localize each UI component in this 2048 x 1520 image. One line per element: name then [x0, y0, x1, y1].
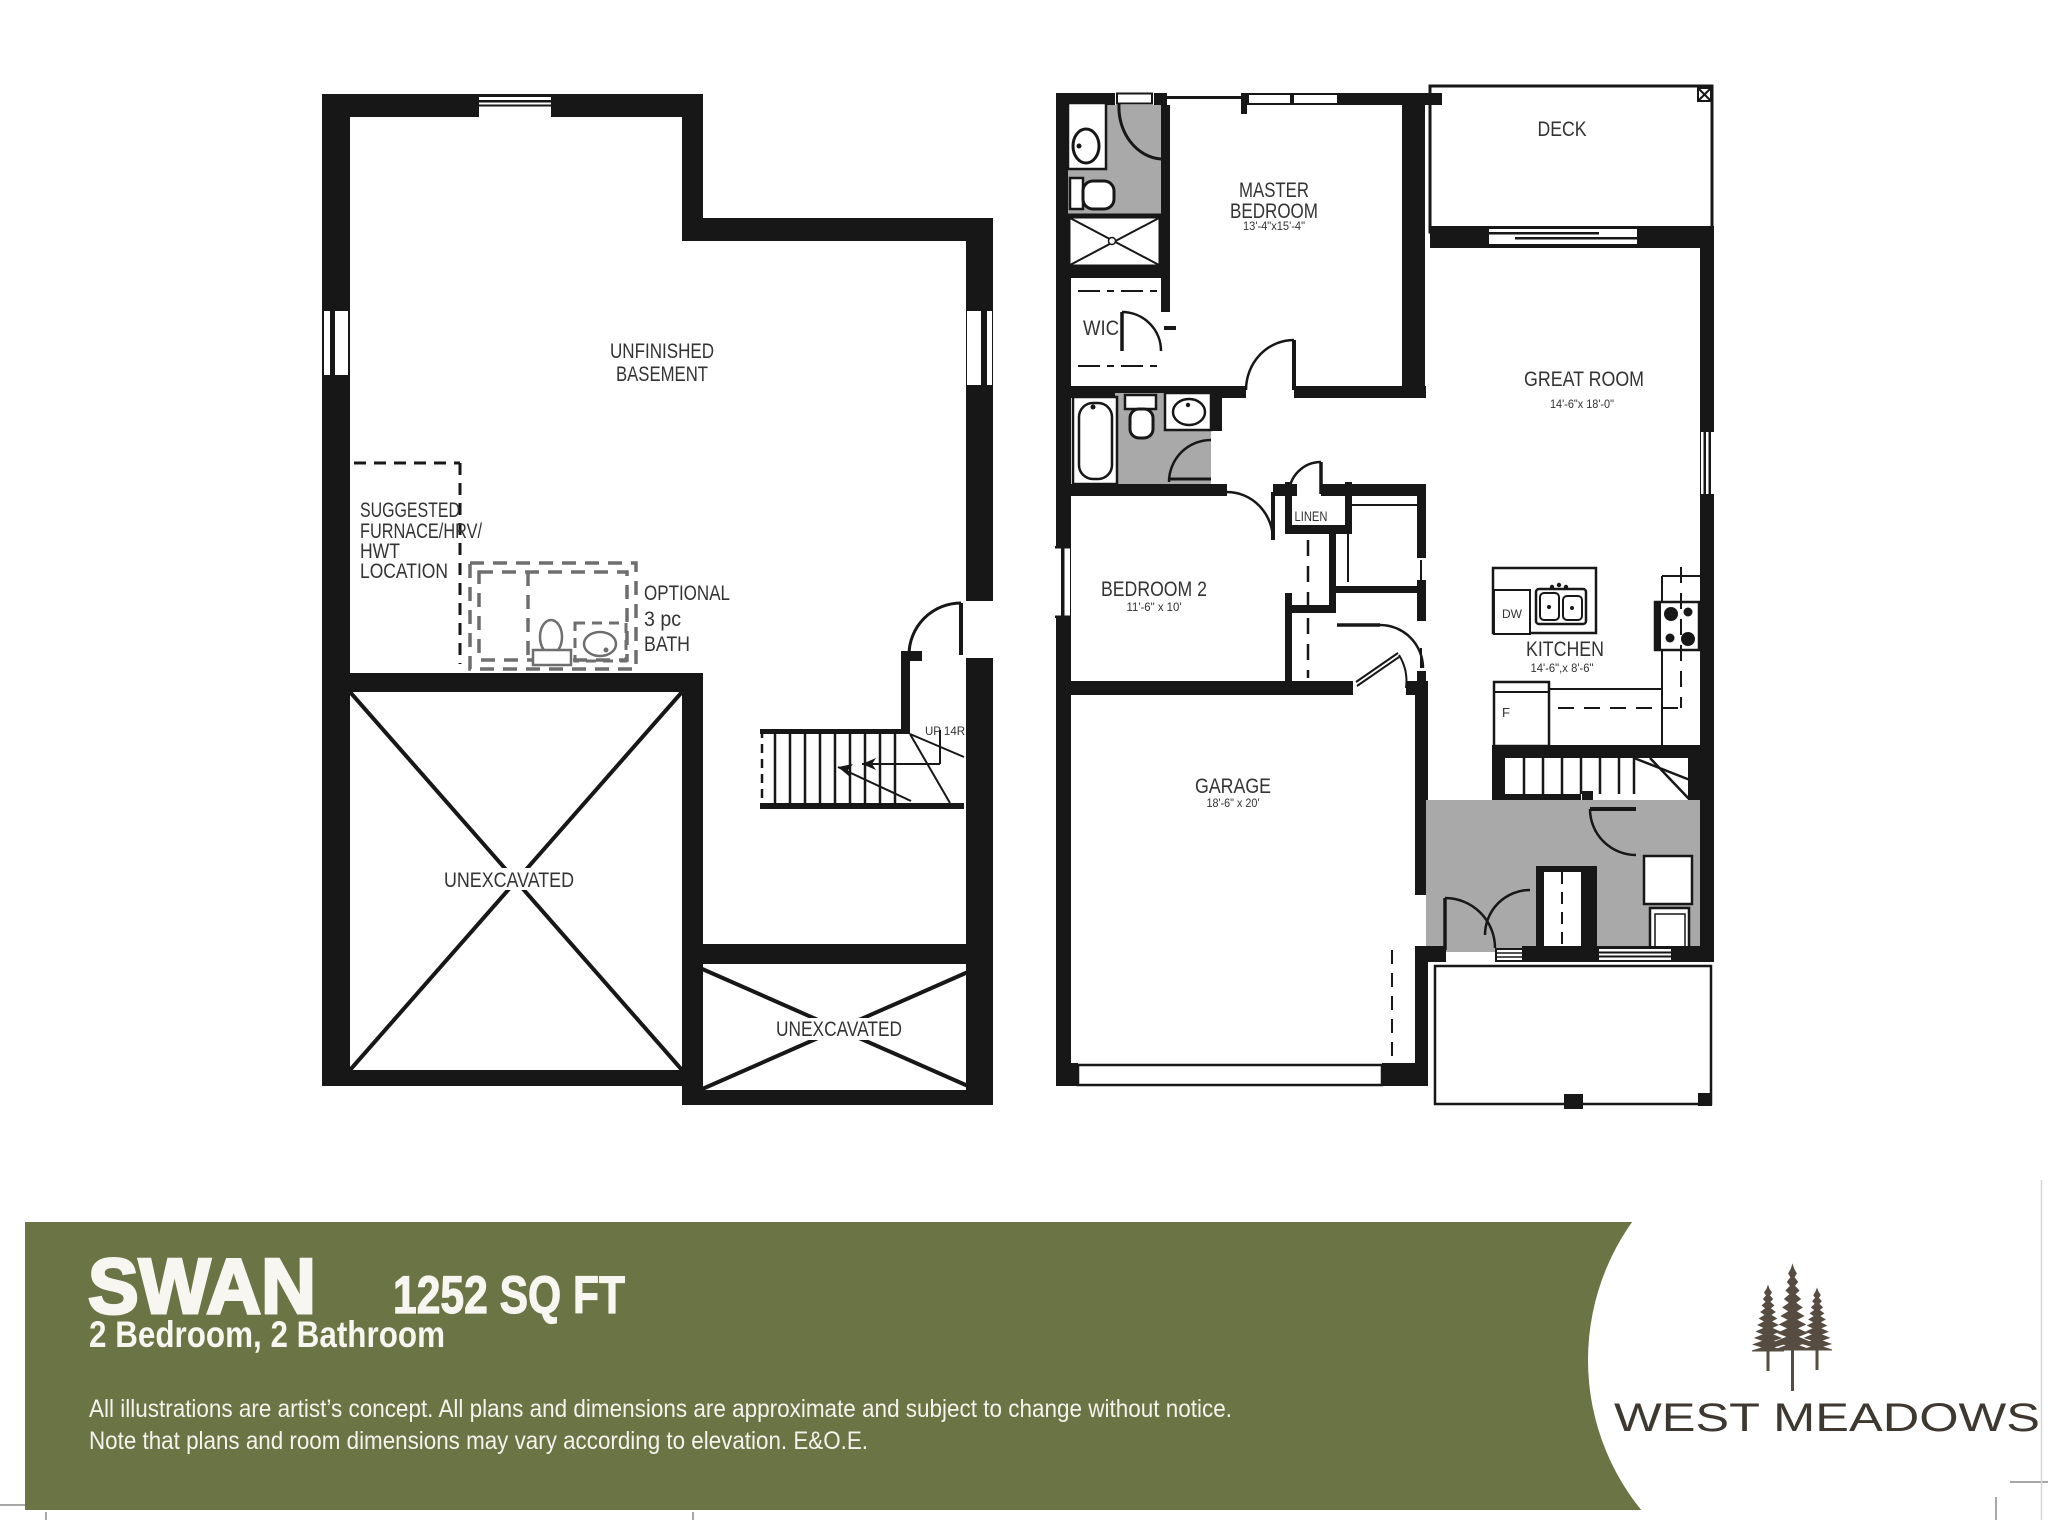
- svg-text:UNEXCAVATED: UNEXCAVATED: [444, 869, 574, 892]
- svg-text:LINEN: LINEN: [1295, 508, 1328, 524]
- svg-text:UNEXCAVATED: UNEXCAVATED: [776, 1018, 902, 1041]
- svg-text:SUGGESTED: SUGGESTED: [360, 499, 460, 522]
- svg-text:WIC: WIC: [1083, 317, 1119, 340]
- svg-text:3 pc: 3 pc: [644, 608, 681, 631]
- svg-text:BEDROOM 2: BEDROOM 2: [1101, 578, 1207, 601]
- svg-text:14'-6"x 18'-0": 14'-6"x 18'-0": [1550, 397, 1614, 411]
- svg-text:DECK: DECK: [1538, 118, 1587, 141]
- svg-text:MASTER: MASTER: [1239, 179, 1309, 202]
- svg-text:BATH: BATH: [644, 633, 690, 656]
- svg-text:Note that plans and room dimen: Note that plans and room dimensions may …: [89, 1427, 868, 1455]
- svg-text:WEST MEADOWS: WEST MEADOWS: [1614, 1396, 2040, 1440]
- svg-text:GARAGE: GARAGE: [1195, 775, 1271, 798]
- svg-text:OPTIONAL: OPTIONAL: [644, 582, 730, 605]
- svg-text:BASEMENT: BASEMENT: [616, 363, 708, 386]
- svg-text:LOCATION: LOCATION: [360, 560, 448, 583]
- svg-text:UNFINISHED: UNFINISHED: [610, 340, 714, 363]
- svg-text:DW: DW: [1502, 607, 1523, 621]
- svg-text:13'-4"x15'-4": 13'-4"x15'-4": [1243, 219, 1305, 233]
- svg-text:KITCHEN: KITCHEN: [1526, 638, 1604, 661]
- svg-text:GREAT ROOM: GREAT ROOM: [1524, 368, 1644, 391]
- svg-text:14'-6",x 8'-6": 14'-6",x 8'-6": [1531, 661, 1594, 675]
- svg-text:UP 14R: UP 14R: [925, 724, 965, 738]
- svg-text:11'-6" x 10': 11'-6" x 10': [1127, 600, 1182, 614]
- svg-text:18'-6" x 20': 18'-6" x 20': [1207, 796, 1260, 810]
- svg-text:2 Bedroom, 2 Bathroom: 2 Bedroom, 2 Bathroom: [89, 1314, 445, 1355]
- svg-text:All illustrations are artist’s: All illustrations are artist’s concept. …: [89, 1395, 1232, 1423]
- svg-text:F: F: [1502, 705, 1510, 720]
